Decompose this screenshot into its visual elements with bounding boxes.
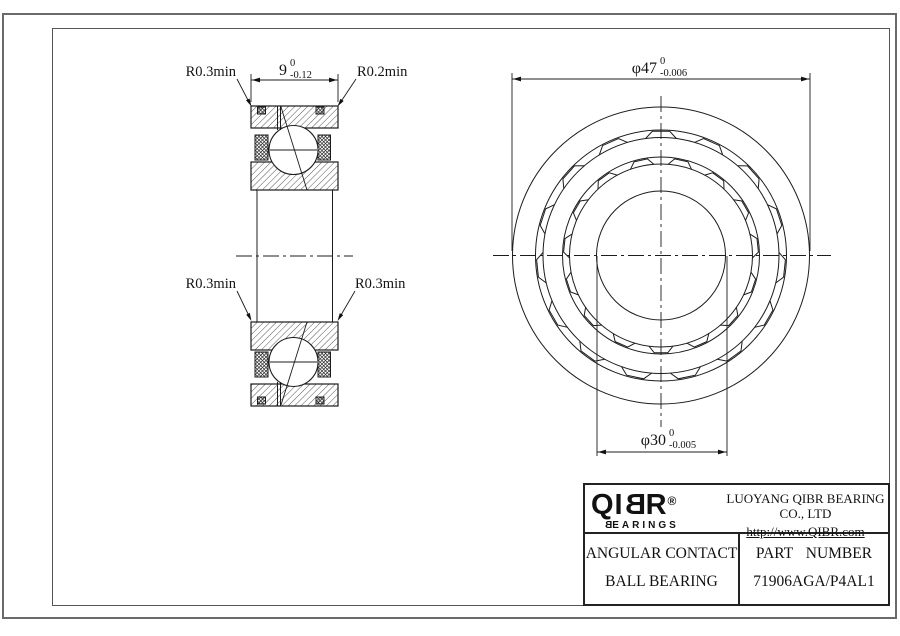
rivet-top-right [316,107,324,114]
logo-wordmark: QIBR® [591,486,723,520]
logo-subtext: BEARINGS [591,520,723,531]
title-block-header-row: QIBR® BEARINGS LUOYANG QIBR BEARING CO.,… [585,485,888,534]
fillet-label-top-right: R0.2min [357,64,408,80]
od-dim-upper-tol: 0 [660,56,665,67]
front-view [493,96,831,427]
cage-section-bottom-left [255,352,268,377]
bore-dim-upper-tol: 0 [669,428,674,439]
part-number-cell: PART NUMBER 71906AGA/P4AL1 [740,534,888,606]
bore-dim-lower-tol: -0.005 [669,440,696,451]
rivet-top-left [258,107,266,114]
part-number-value: 71906AGA/P4AL1 [740,573,888,591]
width-dimension: 9 0 -0.12 [251,58,338,102]
fillet-label-bottom-left: R0.3min [186,276,237,292]
product-type-cell: ANGULAR CONTACT BALL BEARING [585,534,740,606]
bore-diameter-dimension: φ30 0 -0.005 [597,256,727,456]
cage-section-bottom-right [318,352,331,377]
qibr-logo: QIBR® BEARINGS [585,485,723,532]
product-type-line2: BALL BEARING [585,573,738,591]
fillet-label-top-left: R0.3min [186,64,237,80]
company-info: LUOYANG QIBR BEARING CO., LTD http://www… [723,485,888,532]
registered-mark-icon: ® [668,494,678,508]
section-view [236,106,353,406]
bore-dim-nominal: φ30 [641,432,666,449]
part-number-label: PART NUMBER [740,545,888,563]
od-dim-nominal: φ47 [632,60,657,77]
product-type-line1: ANGULAR CONTACT [585,545,738,563]
width-dim-nominal: 9 [279,62,287,79]
width-dim-upper-tol: 0 [290,58,295,69]
width-dim-lower-tol: -0.12 [290,70,312,81]
rivet-bottom-right [316,397,324,404]
fillet-callouts: R0.3min R0.2min R0.3min R0.3min [186,64,408,321]
title-block-bottom-row: ANGULAR CONTACT BALL BEARING PART NUMBER… [585,534,888,606]
cage-section-top-right [318,135,331,160]
fillet-label-bottom-right: R0.3min [355,276,406,292]
title-block: QIBR® BEARINGS LUOYANG QIBR BEARING CO.,… [583,483,890,606]
company-name: LUOYANG QIBR BEARING CO., LTD [723,491,888,521]
cage-section-top-left [255,135,268,160]
rivet-bottom-left [258,397,266,404]
od-dim-lower-tol: -0.006 [660,68,687,79]
